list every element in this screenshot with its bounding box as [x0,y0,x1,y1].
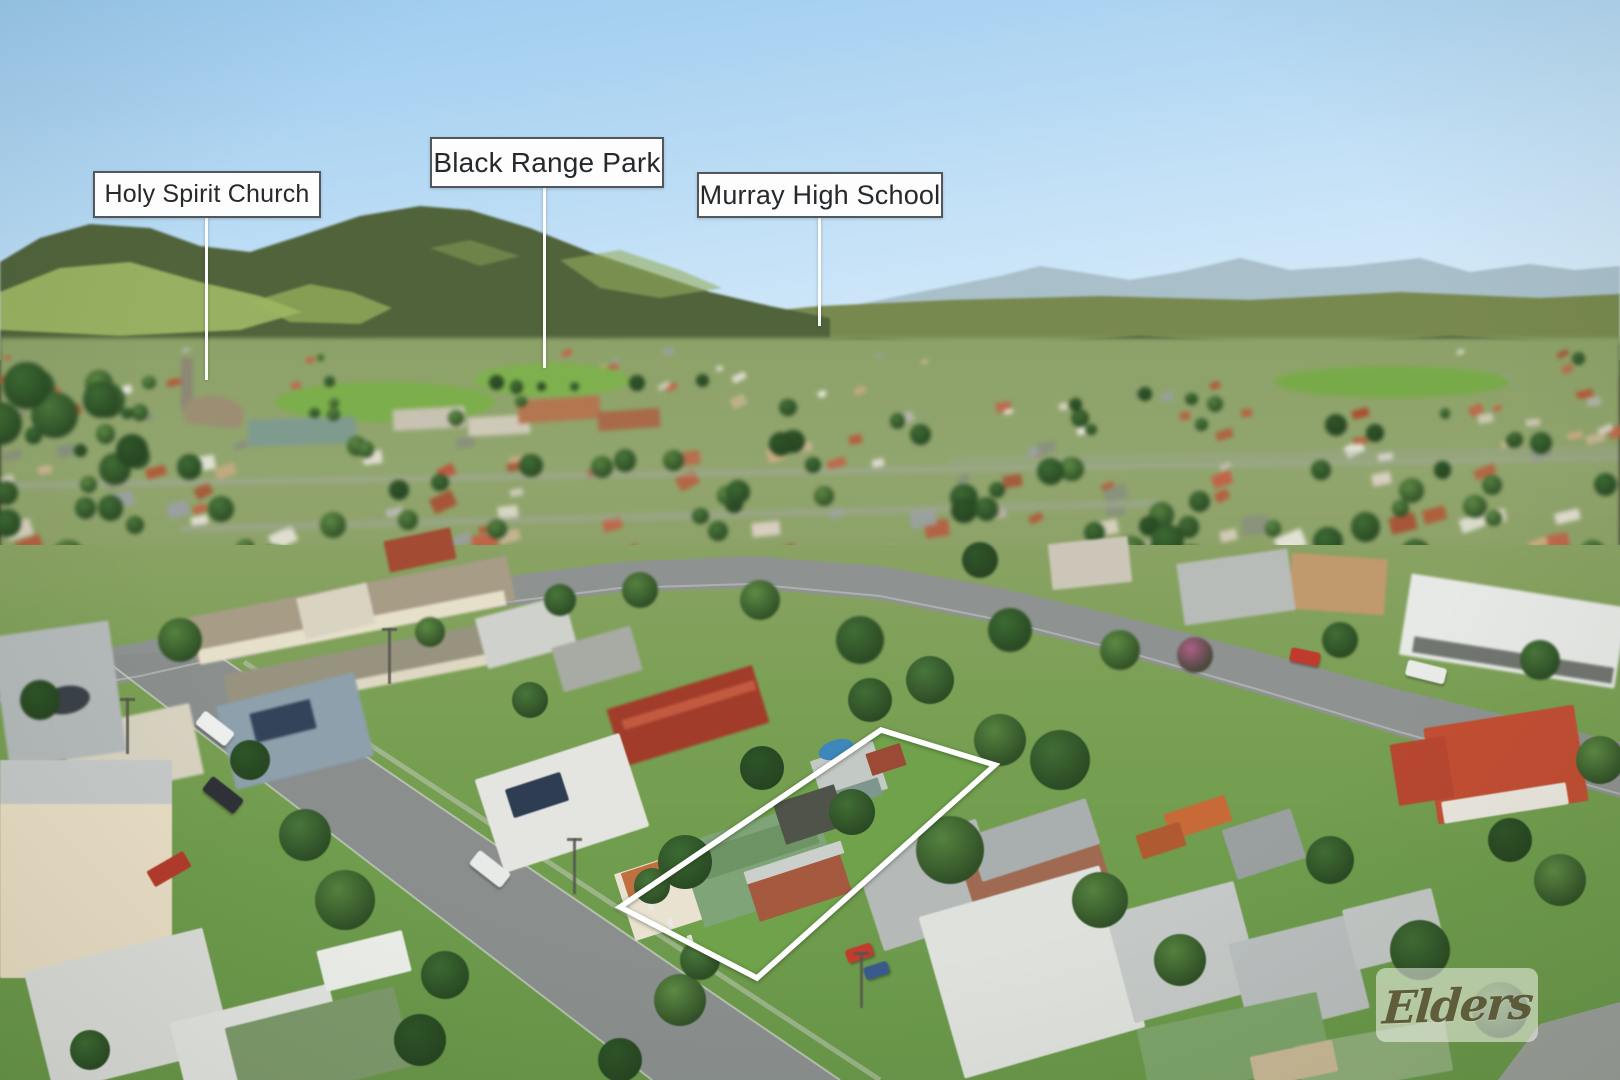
property-boundary-outline [0,0,1620,1080]
location-label-murray-high-school: Murray High School [697,172,943,218]
leader-line-murray-high-school [818,218,821,326]
location-label-text: Black Range Park [433,147,660,179]
location-label-text: Murray High School [700,180,941,211]
location-label-text: Holy Spirit Church [104,180,309,209]
leader-line-black-range-park [543,188,546,368]
elders-watermark-logo: Elders [1376,968,1538,1042]
aerial-photo-scene: Holy Spirit Church Black Range Park Murr… [0,0,1620,1080]
elders-watermark-text: Elders [1381,976,1534,1034]
leader-line-holy-spirit-church [205,218,208,380]
location-label-holy-spirit-church: Holy Spirit Church [93,171,321,218]
location-label-black-range-park: Black Range Park [430,137,664,188]
